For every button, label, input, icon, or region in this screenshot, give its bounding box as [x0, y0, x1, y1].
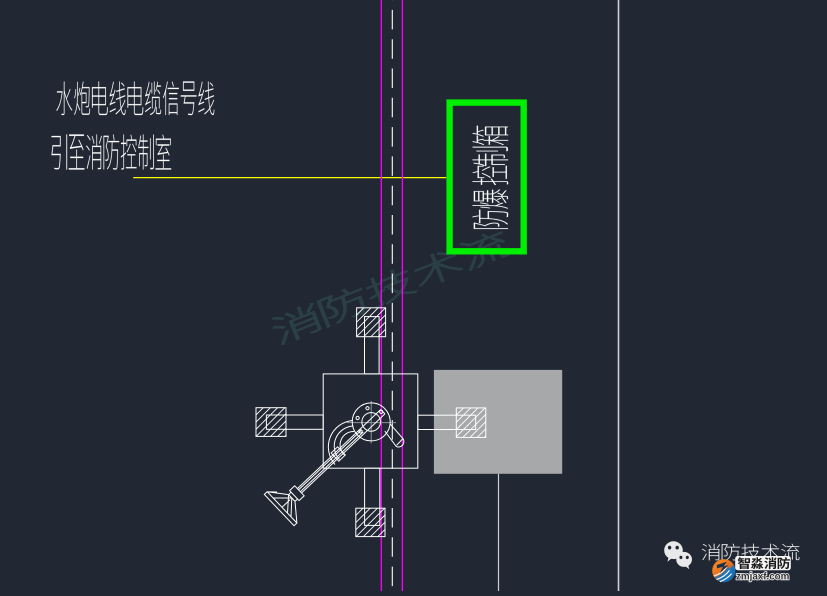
svg-text:zmjaxf.com: zmjaxf.com: [736, 572, 790, 583]
